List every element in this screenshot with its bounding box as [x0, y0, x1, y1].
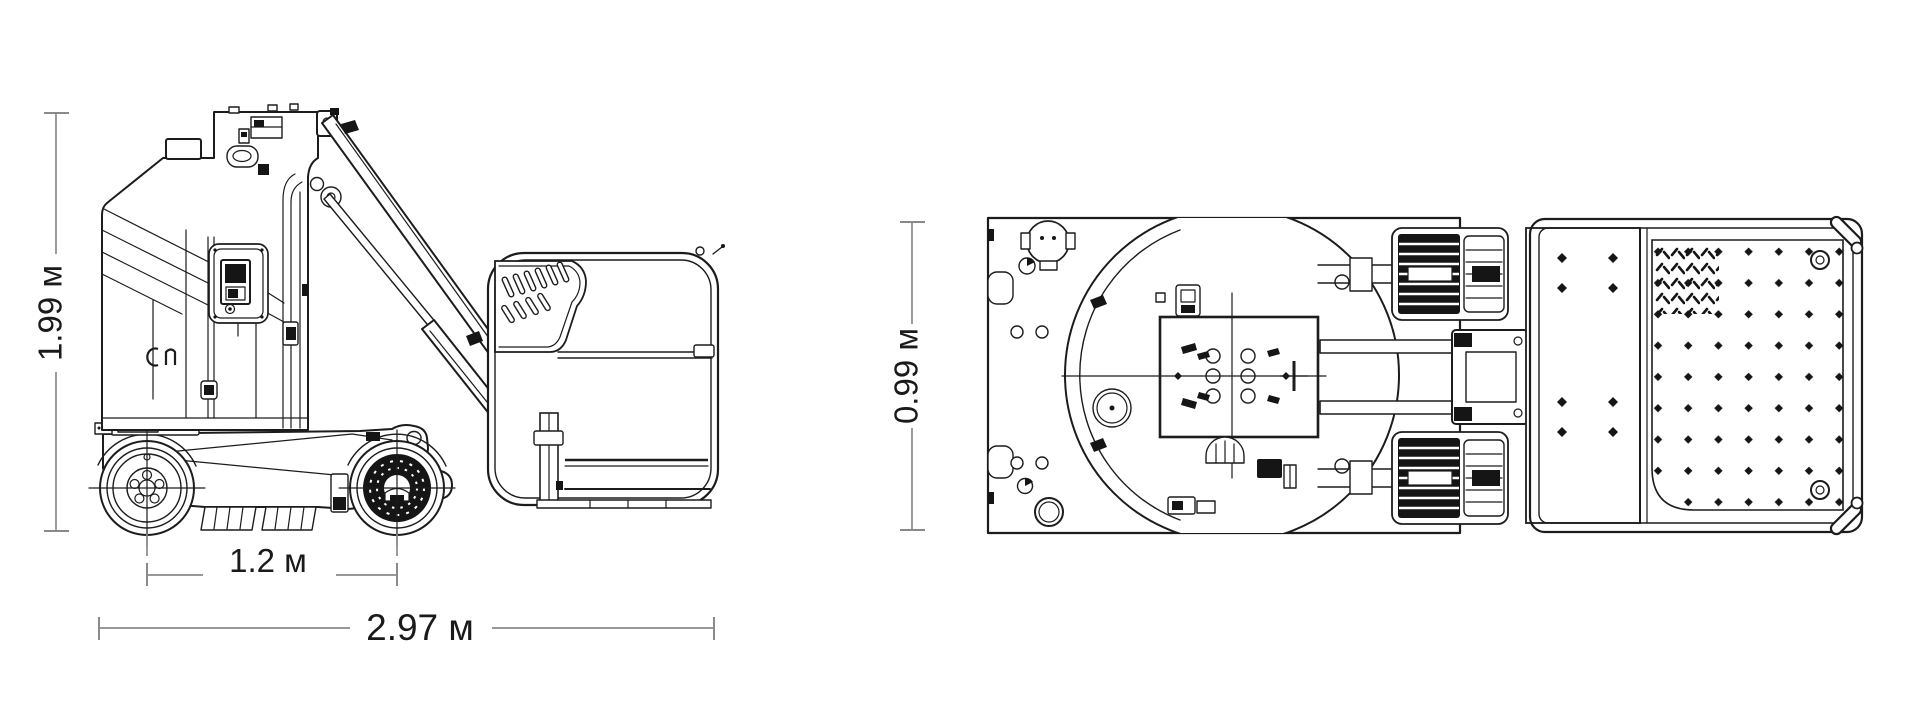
chassis-decal — [366, 432, 380, 441]
top-wheel-lower — [1392, 432, 1508, 524]
pothole-guards — [201, 507, 316, 530]
side-view: 1.99 м 1.2 м 2.97 м — [32, 104, 725, 648]
dim-wheelbase-label: 1.2 м — [229, 542, 307, 579]
dim-length-label: 2.97 м — [366, 607, 474, 648]
dim-height-label: 1.99 м — [32, 265, 69, 361]
platform-mount-plate — [1526, 228, 1640, 523]
jack-bracket — [988, 272, 1013, 304]
mast-cap — [166, 139, 201, 159]
dim-wheelbase: 1.2 м — [147, 534, 397, 586]
top-view: 0.99 м — [888, 208, 1864, 542]
ground-control-panel — [209, 244, 268, 323]
dim-width-label: 0.99 м — [888, 328, 925, 424]
top-wheel-upper — [1392, 228, 1508, 320]
hoist-bracket — [227, 146, 258, 167]
blueprint-canvas: 1.99 м 1.2 м 2.97 м — [0, 0, 1920, 707]
dim-width: 0.99 м — [888, 222, 925, 530]
dim-length: 2.97 м — [99, 607, 714, 648]
top-chassis — [988, 208, 1460, 542]
diamond-plate-patch — [1655, 246, 1719, 314]
top-platform — [1526, 215, 1863, 537]
side-platform — [488, 244, 725, 508]
side-mast — [102, 104, 341, 430]
machine-drawing-svg: 1.99 м 1.2 м 2.97 м — [0, 0, 1920, 707]
jack-bracket — [988, 446, 1013, 478]
gate-hinge — [694, 345, 714, 357]
dim-height: 1.99 м — [32, 113, 69, 531]
